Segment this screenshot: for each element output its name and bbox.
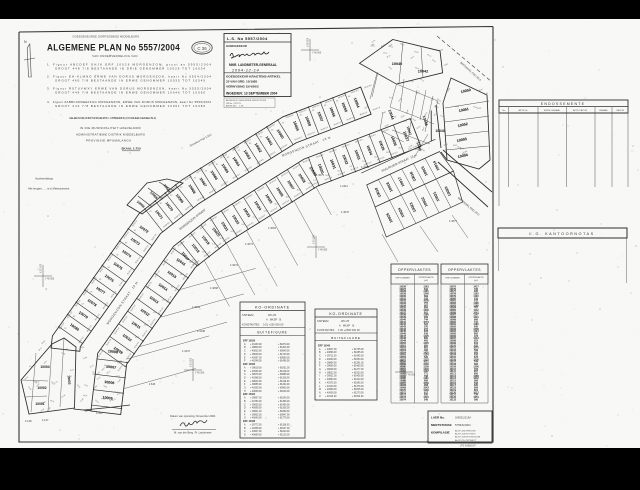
svg-text:50,16: 50,16	[162, 299, 166, 301]
svg-text:44°: 44°	[324, 105, 327, 107]
svg-text:4.: 4.	[47, 100, 50, 104]
svg-text:+ 81328.00: + 81328.00	[278, 378, 290, 380]
svg-text:+ 40388.00: + 40388.00	[250, 378, 262, 380]
svg-text:74°: 74°	[116, 255, 119, 257]
svg-text:+ 40369.00: + 40369.00	[250, 388, 262, 390]
svg-text:ERF 10026: ERF 10026	[243, 340, 256, 343]
svg-text:+ 80996.00: + 80996.00	[278, 357, 290, 359]
svg-text:1.: 1.	[47, 63, 50, 67]
svg-text:10040: 10040	[392, 62, 403, 66]
svg-text:Datum van opmeting: November 2: Datum van opmeting: November 2004	[170, 414, 216, 418]
svg-text:X 81 500: X 81 500	[191, 357, 193, 367]
svg-text:29°: 29°	[90, 291, 93, 293]
svg-text:+ 39643.00: + 39643.00	[250, 381, 262, 383]
svg-text:BUITEFIGURE: BUITEFIGURE	[257, 331, 287, 335]
svg-text:10004: 10004	[40, 365, 49, 369]
svg-text:AFGEKEUR: GEEN ERWE VERKOOP NI: AFGEKEUR: GEEN ERWE VERKOOP NIE	[226, 99, 267, 102]
svg-text:M. van der Berg Pr. Landmeter: M. van der Berg Pr. Landmeter	[174, 431, 212, 435]
svg-text:S/9931/2/JM: S/9931/2/JM	[455, 416, 471, 420]
svg-text:18,36: 18,36	[398, 147, 402, 149]
svg-text:+ 81119.00: + 81119.00	[278, 371, 290, 373]
svg-text:L.S. No 5557/2004: L.S. No 5557/2004	[227, 36, 268, 41]
svg-text:+ 40428.00: + 40428.00	[325, 393, 337, 395]
svg-text:+ 40669.00: + 40669.00	[250, 435, 262, 437]
svg-text:34°: 34°	[205, 171, 208, 173]
svg-text:+ 40699.00: + 40699.00	[250, 408, 262, 410]
svg-text:+ 39957.00: + 39957.00	[250, 398, 262, 400]
svg-text:+ 81444.00: + 81444.00	[352, 379, 364, 381]
svg-text:X 80 500: X 80 500	[308, 37, 310, 47]
svg-text:GOEDGEKEURDE DORPSGEBIED MIDDE: GOEDGEKEURDE DORPSGEBIED MIDDELBURG	[73, 35, 140, 39]
svg-text:+ 81533.00: + 81533.00	[352, 372, 364, 374]
svg-text:18,6: 18,6	[286, 197, 289, 199]
svg-text:INGEDIEN: 13 SEPTEMBER 2004: INGEDIEN: 13 SEPTEMBER 2004	[226, 92, 277, 96]
svg-text:43°: 43°	[312, 110, 315, 112]
svg-text:+ 80947.00: + 80947.00	[278, 414, 290, 416]
svg-text:1:1011: 1:1011	[340, 184, 348, 188]
svg-text:+ 81870.00: + 81870.00	[278, 344, 290, 346]
svg-text:+ 81831.00: + 81831.00	[278, 367, 290, 369]
svg-text:+ 40163.00: + 40163.00	[250, 344, 262, 346]
svg-text:+ 81545.00: + 81545.00	[278, 398, 290, 400]
svg-text:ERF NOMMER: ERF NOMMER	[396, 278, 411, 280]
svg-text:ERF 10038: ERF 10038	[243, 420, 256, 423]
svg-text:Voorbereidings: Voorbereidings	[35, 177, 54, 181]
svg-text:OPPERVLAKTES: OPPERVLAKTES	[448, 268, 481, 272]
svg-text:+ 81020.00: + 81020.00	[278, 431, 290, 433]
svg-text:+ 39808.00: + 39808.00	[250, 347, 262, 349]
svg-text:+ 40539.00: + 40539.00	[250, 371, 262, 373]
svg-text:SISTEEM: SISTEEM	[242, 313, 253, 317]
svg-text:MNR. LANDMETER-GENERAAL: MNR. LANDMETER-GENERAAL	[229, 63, 277, 67]
svg-text:+ 39648.00: + 39648.00	[250, 354, 262, 356]
svg-text:0,0: 0,0	[350, 166, 352, 168]
svg-text:+ 81496.00: + 81496.00	[278, 361, 290, 363]
svg-text:40°: 40°	[271, 129, 274, 131]
svg-text:9,3: 9,3	[313, 180, 315, 182]
svg-text:M: M	[319, 389, 321, 391]
svg-text:+ 40113.00: + 40113.00	[325, 396, 337, 398]
svg-text:46°: 46°	[348, 96, 351, 98]
svg-text:36,12: 36,12	[220, 238, 224, 240]
svg-text:1:1648: 1:1648	[197, 329, 205, 333]
svg-text:89°: 89°	[73, 316, 76, 318]
svg-text:0,30: 0,30	[153, 312, 156, 314]
svg-text:KOMPILASIE: KOMPILASIE	[431, 431, 450, 435]
svg-text:+ 40833.00: + 40833.00	[250, 351, 262, 353]
svg-text:1:3074: 1:3074	[230, 263, 238, 267]
svg-text:OPPERVLAKTE: OPPERVLAKTE	[468, 276, 484, 279]
svg-text:+ 81477.00: + 81477.00	[352, 369, 364, 371]
svg-text:+ 81408.00: + 81408.00	[352, 376, 364, 378]
svg-text:45,15: 45,15	[192, 260, 196, 262]
svg-text:JPS 6088/2/97: JPS 6088/2/97	[460, 445, 476, 448]
svg-text:1:3073: 1:3073	[245, 242, 253, 246]
svg-text:VERWYSING 15/4/26/3: VERWYSING 15/4/26/3	[226, 85, 259, 89]
svg-text:32°: 32°	[180, 187, 183, 189]
svg-text:+ 81496.00: + 81496.00	[278, 401, 290, 403]
svg-text:+ 40669.00: + 40669.00	[325, 359, 337, 361]
svg-text:KONSTANTES: KONSTANTES	[317, 328, 335, 332]
svg-text:9,3: 9,3	[171, 287, 173, 289]
svg-text:ERF 10030: ERF 10030	[243, 363, 256, 366]
svg-text:45,45: 45,45	[297, 190, 301, 192]
svg-text:GROOT 443 7/8 BESTAAN: GROOT 443 7/8 BESTAANDE IN ERWE GENOMMER…	[55, 104, 205, 108]
svg-text:+ 81215.00: + 81215.00	[278, 435, 290, 437]
svg-text:+ 81460.00: + 81460.00	[352, 366, 364, 368]
svg-text:+ 39699.00: + 39699.00	[325, 366, 337, 368]
svg-text:+ 81495.00: + 81495.00	[352, 356, 364, 358]
svg-text:25 VAN ORD. 15/1985: 25 VAN ORD. 15/1985	[226, 80, 258, 84]
svg-text:(m²): (m²)	[474, 279, 478, 282]
svg-text:89°: 89°	[125, 242, 128, 244]
svg-text:GROOT 448 7/8 BESTAAN: GROOT 448 7/8 BESTAANDE IN DRIE GENOMMER…	[55, 67, 205, 71]
svg-text:1:3063: 1:3063	[268, 226, 276, 230]
svg-text:37°: 37°	[238, 150, 241, 152]
svg-text:69,54: 69,54	[455, 106, 459, 108]
svg-text:+ 39618.00: + 39618.00	[250, 367, 262, 369]
svg-text:O: O	[319, 396, 321, 398]
svg-text:ERF 10034: ERF 10034	[243, 393, 256, 396]
svg-text:41°: 41°	[282, 123, 285, 125]
svg-text:+ 81464.00: + 81464.00	[278, 384, 290, 386]
svg-text:G: G	[319, 369, 321, 371]
svg-text:Y 40 500: Y 40 500	[195, 373, 205, 375]
svg-text:32,10: 32,10	[126, 350, 130, 352]
svg-text:60,63: 60,63	[80, 347, 84, 349]
svg-text:+ 39711.00: + 39711.00	[325, 356, 337, 358]
svg-text:+ 81196.00: + 81196.00	[278, 425, 290, 427]
svg-text:+ 40784.00: + 40784.00	[250, 401, 262, 403]
svg-text:ALGP-PS-75/PWE/T7: ALGP-PS-75/PWE/T7	[455, 439, 477, 442]
svg-text:+ 81270.00: + 81270.00	[352, 393, 364, 395]
svg-text:L.G. KANTOORNOTAS: L.G. KANTOORNOTAS	[529, 232, 594, 236]
svg-text:+ 81026.00: + 81026.00	[278, 391, 290, 393]
svg-text:ENDOSSEMENTE: ENDOSSEMENTE	[541, 102, 586, 106]
svg-text:PROVINSIE MPUMALANGA: PROVINSIE MPUMALANGA	[86, 139, 131, 143]
svg-text:+ 80949.00: + 80949.00	[278, 351, 290, 353]
svg-text:33°: 33°	[194, 178, 197, 180]
svg-text:10003: 10003	[67, 375, 72, 385]
svg-text:9,33: 9,33	[212, 244, 215, 246]
svg-text:ALGP-4197/2/TSWG: ALGP-4197/2/TSWG	[455, 433, 476, 436]
svg-text:44°: 44°	[99, 279, 102, 281]
svg-text:ADMINISTRATIEWE DISTRIK MIDDEL: ADMINISTRATIEWE DISTRIK MIDDELBURG	[76, 132, 146, 136]
svg-text:5759/6/2004: 5759/6/2004	[455, 423, 471, 427]
svg-text:+ 40647.00: + 40647.00	[325, 349, 337, 351]
svg-text:GELEE IN DIE DORP MORGENZON -: GELEE IN DIE DORP MORGENZON - UITBREIDIN…	[69, 116, 156, 120]
svg-text:VAN ONDERVERDELING VAN: VAN ONDERVERDELING VAN	[92, 54, 137, 58]
svg-text:G: G	[244, 388, 246, 390]
svg-text:+ 81146.00: + 81146.00	[278, 381, 290, 383]
svg-text:+ 40896.00: + 40896.00	[325, 352, 337, 354]
svg-text:WG 25: WG 25	[268, 313, 277, 317]
svg-text:81,57: 81,57	[386, 152, 390, 154]
svg-text:1:3076: 1:3076	[341, 210, 349, 214]
svg-text:25,27: 25,27	[29, 366, 33, 368]
svg-text:+ 81304.00: + 81304.00	[278, 347, 290, 349]
svg-text:590: 590	[474, 398, 479, 401]
svg-text:+ 39628.00: + 39628.00	[325, 369, 337, 371]
svg-text:Y 40 000: Y 40 000	[312, 53, 322, 55]
svg-text:A MKSP B: A MKSP B	[266, 317, 281, 321]
svg-text:545: 545	[424, 398, 429, 401]
svg-text:1:3077: 1:3077	[449, 219, 457, 223]
svg-text:38°: 38°	[249, 143, 252, 145]
svg-text:+ 80960.00: + 80960.00	[278, 388, 290, 390]
svg-text:+ 81554.00: + 81554.00	[352, 359, 364, 361]
svg-text:+ 81740.00: + 81740.00	[278, 354, 290, 356]
svg-text:+ 81490.00: + 81490.00	[278, 404, 290, 406]
svg-text:+ 39626.00: + 39626.00	[250, 404, 262, 406]
svg-text:31°: 31°	[170, 195, 173, 197]
svg-text:AFDELING 1:98: AFDELING 1:98	[226, 105, 244, 108]
svg-text:+ 39685.00: + 39685.00	[250, 384, 262, 386]
svg-text:63,51: 63,51	[116, 376, 120, 378]
svg-text:+ 39601.00: + 39601.00	[250, 411, 262, 413]
svg-text:Y 40 500: Y 40 500	[45, 279, 55, 281]
svg-text:+ 80988.00: + 80988.00	[278, 374, 290, 376]
svg-text:59°: 59°	[108, 267, 111, 269]
svg-text:ALGP-4197/5/TSWG2/JM: ALGP-4197/5/TSWG2/JM	[455, 436, 480, 439]
svg-text:10002: 10002	[37, 386, 46, 390]
svg-text:+ 81047.00: + 81047.00	[278, 428, 290, 430]
svg-text:+ 81735.00: + 81735.00	[352, 349, 364, 351]
svg-text:MEETSTUKKE: MEETSTUKKE	[431, 423, 452, 427]
svg-text:GROOT 449 7/8 BESTAAN: GROOT 449 7/8 BESTAANDE IN ERWE GENOMMER…	[55, 90, 205, 94]
svg-text:14°: 14°	[82, 304, 85, 306]
svg-text:+ 81376.00: + 81376.00	[352, 386, 364, 388]
svg-text:40,44: 40,44	[144, 325, 148, 327]
svg-text:+ 40358.00: + 40358.00	[250, 428, 262, 430]
svg-text:+ 81779.00: + 81779.00	[278, 418, 290, 420]
svg-text:27,9: 27,9	[253, 217, 256, 219]
svg-text:29°: 29°	[149, 211, 152, 213]
svg-text:+ 40699.00: + 40699.00	[325, 389, 337, 391]
svg-text:+ 40893.00: + 40893.00	[325, 379, 337, 381]
svg-text:10074: 10074	[399, 398, 406, 401]
svg-text:63,51: 63,51	[231, 231, 235, 233]
svg-text:Y 40 000: Y 40 000	[318, 250, 328, 252]
svg-text:WG 25: WG 25	[341, 319, 350, 323]
svg-text:+ 39952.00: + 39952.00	[250, 414, 262, 416]
svg-text:1:128: 1:128	[25, 419, 32, 423]
svg-text:LW No. 75/2175: LW No. 75/2175	[226, 103, 242, 105]
svg-text:14°: 14°	[134, 230, 137, 232]
svg-text:81,27: 81,27	[275, 204, 279, 206]
svg-text:AKTE DATUM: AKTE DATUM	[573, 109, 587, 112]
svg-text:45°: 45°	[336, 101, 339, 103]
svg-text:+ 81695.00: + 81695.00	[352, 382, 364, 384]
svg-text:SISTEEM: SISTEEM	[317, 319, 328, 323]
svg-text:1:3068: 1:3068	[210, 286, 218, 290]
svg-text:81,57: 81,57	[135, 337, 139, 339]
svg-text:58,50: 58,50	[180, 274, 184, 276]
svg-text:+ 39576.00: + 39576.00	[250, 374, 262, 376]
svg-text:1.00 +2500 000.00: 1.00 +2500 000.00	[338, 328, 360, 332]
svg-text:+ 39921.00: + 39921.00	[325, 376, 337, 378]
svg-text:GOEDGEKEUR KRAGTENS ARTIKEL: GOEDGEKEUR KRAGTENS ARTIKEL	[226, 75, 281, 79]
svg-text:27,17: 27,17	[389, 97, 393, 99]
svg-text:GROOT 460 7/8 BESTAAN: GROOT 460 7/8 BESTAANDE IN ERWE GENOMMER…	[55, 79, 205, 83]
svg-text:X 81 000: X 81 000	[314, 234, 316, 244]
svg-text:ERF NOMMER: ERF NOMMER	[446, 278, 461, 280]
svg-text:ERF 10040: ERF 10040	[318, 345, 331, 348]
svg-text:35°: 35°	[216, 164, 219, 166]
svg-text:+ 81085.00: + 81085.00	[352, 352, 364, 354]
svg-text:54,48: 54,48	[264, 210, 268, 212]
svg-text:42°: 42°	[300, 115, 303, 117]
svg-text:GOEDGEKEUR: GOEDGEKEUR	[226, 44, 248, 48]
svg-text:1:1076: 1:1076	[361, 165, 369, 169]
svg-text:74°: 74°	[64, 328, 67, 330]
svg-text:1:3075: 1:3075	[316, 173, 324, 177]
svg-text:1:1647: 1:1647	[182, 349, 190, 353]
svg-text:+ 40143.00: + 40143.00	[325, 386, 337, 388]
svg-text:+ 39884.00: + 39884.00	[325, 362, 337, 364]
svg-text:ALGEMENE PLAN No 5557/2004: ALGEMENE PLAN No 5557/2004	[47, 43, 180, 54]
svg-text:J: J	[319, 379, 320, 381]
svg-text:IN DIE MUNISIPALITEIT HOEVELDR: IN DIE MUNISIPALITEIT HOEVELDRIF	[80, 126, 141, 130]
svg-text:ALGP-4547/PH/2/JM: ALGP-4547/PH/2/JM	[455, 430, 476, 433]
svg-text:+ 40597.00: + 40597.00	[250, 357, 262, 359]
svg-text:3.: 3.	[47, 86, 50, 90]
svg-text:36°: 36°	[227, 157, 230, 159]
svg-text:+ 39622.00: + 39622.00	[325, 372, 337, 374]
svg-text:KONSTANTES: KONSTANTES	[242, 322, 260, 326]
svg-text:KO-ORDINATE: KO-ORDINATE	[255, 306, 290, 310]
svg-text:OPPERVLAKTE: OPPERVLAKTE	[418, 276, 434, 279]
svg-text:1:646: 1:646	[149, 382, 156, 386]
svg-text:+ 40607.00: + 40607.00	[250, 431, 262, 433]
svg-text:C 36: C 36	[197, 46, 207, 51]
svg-text:72,24: 72,24	[117, 363, 121, 365]
svg-text:ERWE GERAAK: ERWE GERAAK	[544, 109, 561, 112]
svg-text:+ 39772.00: + 39772.00	[250, 425, 262, 427]
svg-text:+ 81281.00: + 81281.00	[352, 362, 364, 364]
svg-text:X 81 000: X 81 000	[41, 263, 43, 273]
svg-text:10043: 10043	[435, 129, 444, 133]
svg-text:0.01 +250 000.00: 0.01 +250 000.00	[263, 322, 284, 326]
svg-text:BUITEFIGURE: BUITEFIGURE	[331, 336, 361, 340]
svg-text:1:127: 1:127	[42, 418, 49, 422]
svg-text:SKAAL 1:750: SKAAL 1:750	[121, 147, 141, 151]
svg-text:30°: 30°	[160, 203, 163, 205]
svg-text:10123: 10123	[449, 398, 456, 401]
svg-text:2.: 2.	[47, 74, 50, 78]
svg-text:+ 81154.00: + 81154.00	[352, 396, 364, 398]
svg-text:59,24: 59,24	[83, 395, 87, 397]
svg-text:LAER No.: LAER No.	[431, 416, 445, 420]
svg-text:1:2064: 1:2064	[192, 305, 200, 309]
svg-text:0,30: 0,30	[242, 224, 245, 226]
svg-text:OPPERVLAKTES: OPPERVLAKTES	[398, 268, 431, 272]
svg-text:2004-12-14: 2004-12-14	[231, 68, 260, 73]
svg-text:PARAAF: PARAAF	[599, 109, 608, 112]
svg-text:+ 81845.00: + 81845.00	[352, 389, 364, 391]
svg-text:39°: 39°	[260, 136, 263, 138]
svg-text:+ 81899.00: + 81899.00	[278, 411, 290, 413]
svg-text:A MKSP B: A MKSP B	[339, 323, 354, 327]
svg-text:+ 40375.00: + 40375.00	[325, 382, 337, 384]
svg-text:(m²): (m²)	[424, 279, 428, 282]
svg-text:1:303: 1:303	[96, 411, 103, 415]
svg-text:10001: 10001	[35, 402, 44, 406]
svg-text:KO-ORDINATE: KO-ORDINATE	[329, 312, 363, 316]
svg-text:27,39: 27,39	[362, 161, 366, 163]
svg-text:AKTE No: AKTE No	[518, 109, 528, 112]
svg-text:+ 81306.00: + 81306.00	[278, 408, 290, 410]
svg-text:Alle lengtes ..... is in Meter: Alle lengtes ..... is in Meter/persent	[28, 187, 69, 191]
svg-text:72,54: 72,54	[202, 252, 206, 254]
svg-text:DATUM: DATUM	[616, 109, 624, 112]
